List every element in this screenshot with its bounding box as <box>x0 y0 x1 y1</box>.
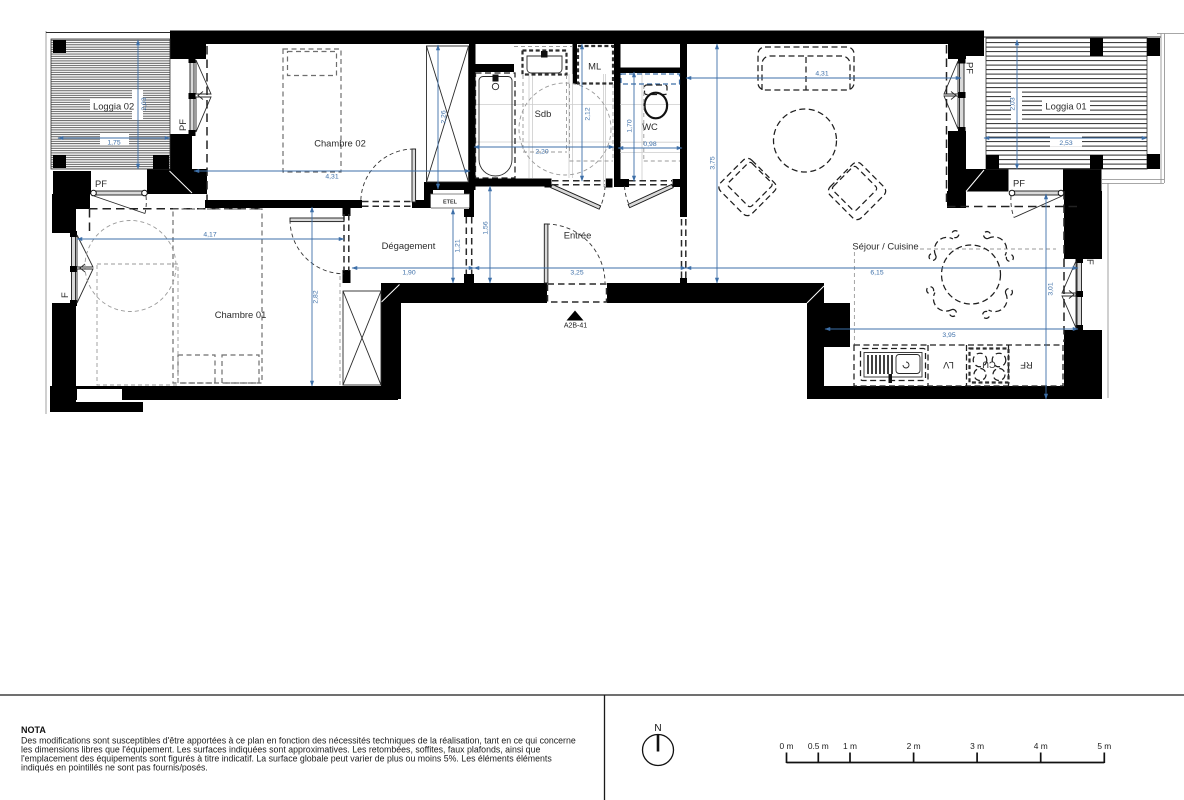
svg-text:1,56: 1,56 <box>483 221 490 234</box>
svg-text:2,12: 2,12 <box>585 107 592 120</box>
svg-text:3,75: 3,75 <box>710 156 717 169</box>
svg-text:ETEL: ETEL <box>443 200 458 206</box>
svg-text:Loggia 02: Loggia 02 <box>93 101 134 112</box>
svg-text:1,90: 1,90 <box>402 270 415 277</box>
svg-text:2 m: 2 m <box>907 741 921 751</box>
svg-text:3,01: 3,01 <box>1048 282 1055 295</box>
svg-text:0 m: 0 m <box>780 741 794 751</box>
svg-text:2,03: 2,03 <box>1010 97 1017 110</box>
svg-text:LV: LV <box>942 360 954 371</box>
svg-text:4 m: 4 m <box>1034 741 1048 751</box>
svg-text:1 m: 1 m <box>843 741 857 751</box>
svg-text:2,82: 2,82 <box>313 290 320 303</box>
svg-text:4,31: 4,31 <box>325 174 338 181</box>
svg-text:2,03: 2,03 <box>141 97 148 110</box>
svg-text:2,20: 2,20 <box>535 149 548 156</box>
svg-text:PF: PF <box>177 119 188 131</box>
svg-text:4,17: 4,17 <box>203 232 216 239</box>
svg-text:Chambre 02: Chambre 02 <box>314 138 366 149</box>
svg-text:WC: WC <box>642 121 658 132</box>
svg-text:2,26: 2,26 <box>441 110 448 123</box>
svg-text:Séjour / Cuisine: Séjour / Cuisine <box>852 241 918 252</box>
svg-text:1,21: 1,21 <box>455 239 462 252</box>
svg-text:N: N <box>654 723 661 734</box>
svg-text:PF: PF <box>95 178 107 189</box>
svg-text:PF: PF <box>1013 178 1025 189</box>
svg-text:ML: ML <box>588 61 601 72</box>
svg-text:F: F <box>59 292 70 298</box>
svg-text:Entrée: Entrée <box>564 230 592 241</box>
svg-text:1,75: 1,75 <box>107 140 120 147</box>
svg-text:Dégagement: Dégagement <box>382 240 436 251</box>
svg-text:2,53: 2,53 <box>1059 140 1072 147</box>
svg-text:0.5 m: 0.5 m <box>808 741 829 751</box>
svg-text:Sdb: Sdb <box>535 108 552 119</box>
svg-text:4,31: 4,31 <box>815 71 828 78</box>
svg-text:PF: PF <box>965 62 976 74</box>
svg-text:RF: RF <box>1020 360 1033 371</box>
svg-text:indiqués en pointillés ne sont: indiqués en pointillés ne sont pas fourn… <box>21 762 208 772</box>
svg-text:6,15: 6,15 <box>870 270 883 277</box>
svg-text:CU: CU <box>982 360 996 371</box>
svg-text:Chambre 01: Chambre 01 <box>215 309 267 320</box>
svg-text:3 m: 3 m <box>970 741 984 751</box>
svg-text:F: F <box>1085 259 1096 265</box>
svg-text:5 m: 5 m <box>1097 741 1111 751</box>
svg-text:NOTA: NOTA <box>21 725 46 735</box>
svg-text:3,25: 3,25 <box>570 270 583 277</box>
svg-text:3,95: 3,95 <box>942 332 955 339</box>
svg-text:1,70: 1,70 <box>627 119 634 132</box>
svg-text:A2B-41: A2B-41 <box>564 323 587 330</box>
svg-text:0,98: 0,98 <box>643 141 656 148</box>
svg-text:Loggia 01: Loggia 01 <box>1045 101 1086 112</box>
